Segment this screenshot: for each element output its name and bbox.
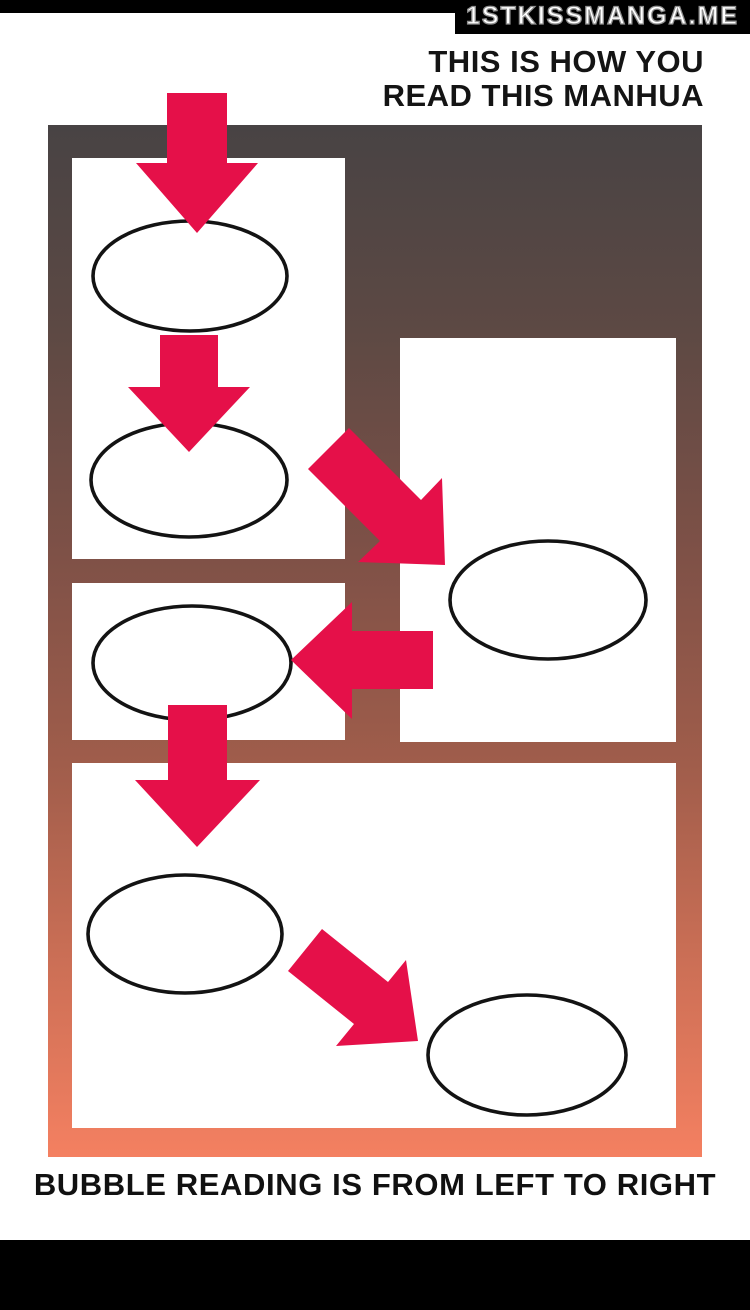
speech-bubble-5 <box>88 875 282 993</box>
bottom-black-bar <box>0 1240 750 1310</box>
speech-bubble-3 <box>450 541 646 659</box>
speech-bubble-1 <box>93 221 287 331</box>
bottom-caption: BUBBLE READING IS FROM LEFT TO RIGHT <box>0 1167 750 1203</box>
speech-bubble-6 <box>428 995 626 1115</box>
speech-bubble-4 <box>93 606 291 720</box>
reading-order-diagram <box>0 0 750 1310</box>
